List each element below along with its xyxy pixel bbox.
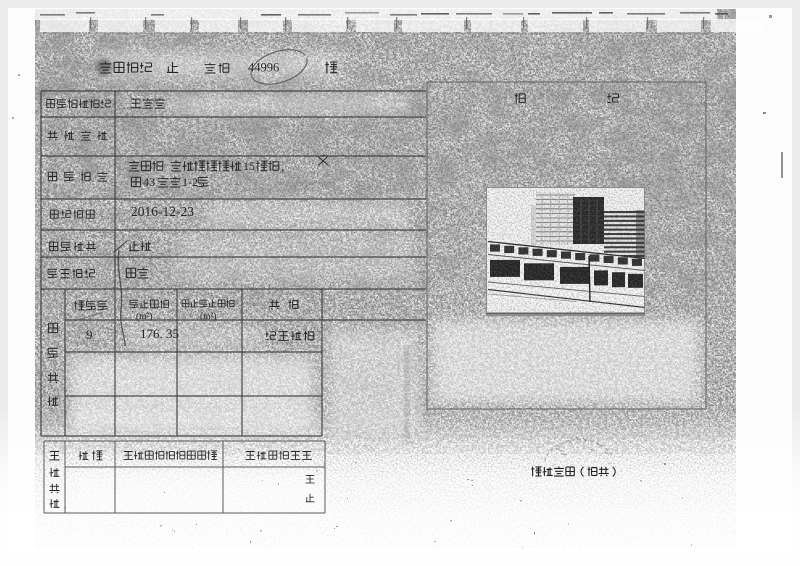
svg-text:176. 35: 176. 35 <box>140 326 179 341</box>
svg-text:9: 9 <box>86 327 93 342</box>
svg-text:2016-12-23: 2016-12-23 <box>131 204 194 219</box>
svg-text:15: 15 <box>243 159 255 173</box>
svg-text:1-2: 1-2 <box>182 175 198 189</box>
svg-text:(m²): (m²) <box>200 311 217 322</box>
svg-text:(m²): (m²) <box>136 311 153 322</box>
svg-text:43: 43 <box>143 175 155 189</box>
